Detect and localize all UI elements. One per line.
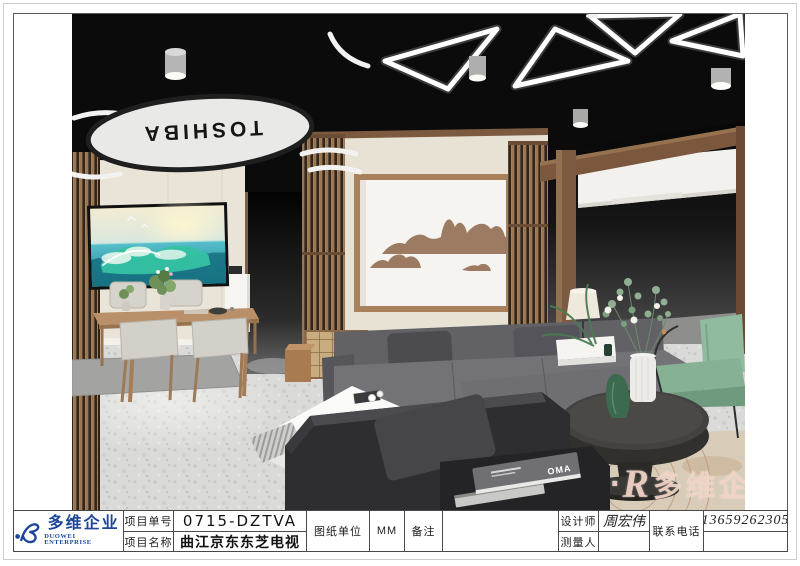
unit-label: 图纸单位: [306, 511, 369, 551]
phone-value: 13659262305: [703, 511, 787, 531]
logo-name-cn: 多维企业: [48, 516, 120, 532]
logo-name-en: DUOWEI ENTERPRISE: [44, 534, 123, 547]
title-block: 多维企业 DUOWEI ENTERPRISE 项目单号 项目名称 0715-DZ…: [13, 510, 788, 552]
remark-value: [442, 511, 558, 551]
watermark-logo-icon: R: [622, 464, 649, 504]
project-name-label: 项目名称: [123, 531, 173, 551]
phone-value-row2: [703, 531, 787, 551]
rendering-scene: TOSHIBA: [72, 14, 745, 510]
interior-rendering: TOSHIBA: [72, 14, 745, 510]
project-no-value: 0715-DZTVA: [173, 511, 306, 531]
watermark-text: 多维企: [653, 463, 745, 505]
watermark-dot: ·: [610, 465, 621, 504]
unit-value: MM: [369, 511, 404, 551]
duowei-logo-icon: [14, 517, 41, 545]
watermark: · R 多维企: [610, 463, 745, 505]
logo-texts: 多维企业 DUOWEI ENTERPRISE: [44, 516, 123, 547]
wood-side-box: [285, 344, 315, 382]
project-no-label: 项目单号: [123, 511, 173, 531]
project-name-value: 曲江京东东芝电视: [173, 531, 306, 551]
surveyor-label: 测量人: [558, 531, 598, 551]
designer-label: 设计师: [558, 511, 598, 531]
designer-value: 周宏伟: [598, 511, 649, 531]
phone-label: 联系电话: [649, 511, 703, 551]
remark-label: 备注: [404, 511, 442, 551]
company-logo: 多维企业 DUOWEI ENTERPRISE: [14, 511, 123, 551]
surveyor-value: [598, 531, 649, 551]
design-sheet: TOSHIBA: [0, 0, 800, 566]
